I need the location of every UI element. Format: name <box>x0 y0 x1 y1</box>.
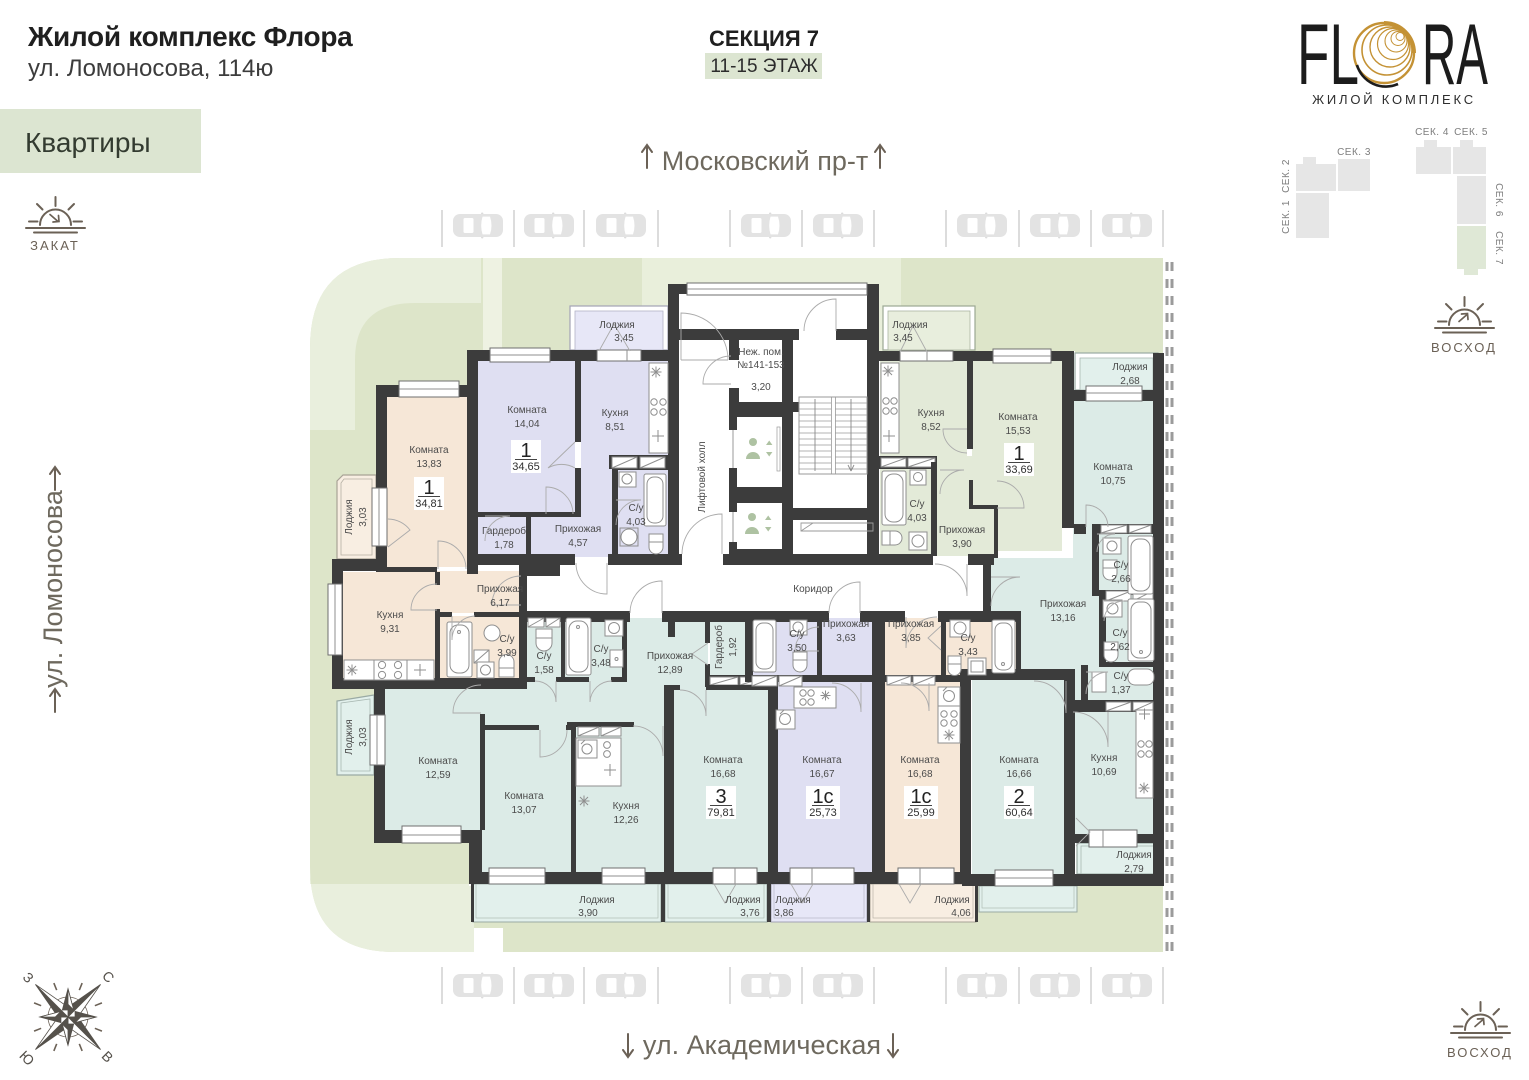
svg-text:11-15 ЭТАЖ: 11-15 ЭТАЖ <box>710 56 818 77</box>
svg-text:Неж. пом.: Неж. пом. <box>738 347 784 358</box>
svg-text:6,17: 6,17 <box>490 598 510 609</box>
svg-text:СЕК. 5: СЕК. 5 <box>1454 127 1488 138</box>
svg-text:Прихожая: Прихожая <box>647 651 693 662</box>
svg-text:2,66: 2,66 <box>1111 574 1131 585</box>
svg-text:33,69: 33,69 <box>1005 464 1033 476</box>
svg-text:3,03: 3,03 <box>358 727 369 747</box>
svg-text:Лоджия: Лоджия <box>892 320 927 331</box>
svg-text:Прихожая: Прихожая <box>888 619 934 630</box>
svg-text:Лоджия: Лоджия <box>579 895 614 906</box>
svg-text:Прихожая: Прихожая <box>555 524 601 535</box>
svg-text:Лифтовой холл: Лифтовой холл <box>696 441 708 512</box>
svg-text:С/у: С/у <box>910 499 925 510</box>
svg-text:Прихожая: Прихожая <box>477 584 523 595</box>
svg-text:79,81: 79,81 <box>707 807 735 819</box>
svg-text:С/у: С/у <box>1114 560 1129 571</box>
svg-text:9,31: 9,31 <box>380 624 400 635</box>
svg-text:Кухня: Кухня <box>613 801 640 812</box>
svg-text:3,86: 3,86 <box>774 908 794 919</box>
svg-text:Комната: Комната <box>703 755 743 766</box>
svg-text:4,03: 4,03 <box>907 513 927 524</box>
svg-text:12,89: 12,89 <box>657 665 682 676</box>
svg-text:Комната: Комната <box>900 755 940 766</box>
svg-text:3,85: 3,85 <box>901 633 921 644</box>
svg-text:С/у: С/у <box>961 633 976 644</box>
svg-text:Лоджия: Лоджия <box>1116 850 1151 861</box>
svg-text:Кухня: Кухня <box>377 610 404 621</box>
svg-text:4,03: 4,03 <box>626 517 646 528</box>
svg-text:ул. Академическая: ул. Академическая <box>643 1030 881 1060</box>
svg-text:1: 1 <box>520 440 531 462</box>
svg-text:Прихожая: Прихожая <box>939 525 985 536</box>
svg-text:№141-153: №141-153 <box>737 360 785 371</box>
svg-text:3,20: 3,20 <box>751 382 771 393</box>
svg-text:Лоджия: Лоджия <box>599 320 634 331</box>
svg-text:3,76: 3,76 <box>740 908 760 919</box>
svg-text:ЗАКАТ: ЗАКАТ <box>30 238 80 253</box>
svg-text:ЖИЛОЙ КОМПЛЕКС: ЖИЛОЙ КОМПЛЕКС <box>1312 92 1476 107</box>
svg-text:3,03: 3,03 <box>358 507 369 527</box>
svg-text:Комната: Комната <box>504 791 544 802</box>
svg-text:С/у: С/у <box>790 629 805 640</box>
svg-text:1,92: 1,92 <box>728 637 739 657</box>
svg-text:С/у: С/у <box>594 644 609 655</box>
svg-text:1с: 1с <box>910 786 931 808</box>
svg-text:СЕК. 3: СЕК. 3 <box>1337 147 1371 158</box>
svg-text:34,81: 34,81 <box>415 498 443 510</box>
svg-text:Прихожая: Прихожая <box>1040 599 1086 610</box>
svg-text:16,67: 16,67 <box>809 769 834 780</box>
svg-text:Комната: Комната <box>1093 462 1133 473</box>
svg-text:С/у: С/у <box>537 651 552 662</box>
svg-text:Кухня: Кухня <box>918 408 945 419</box>
svg-text:25,73: 25,73 <box>809 807 837 819</box>
svg-text:Комната: Комната <box>409 445 449 456</box>
svg-text:Лоджия: Лоджия <box>934 895 969 906</box>
svg-text:СЕК. 2: СЕК. 2 <box>1281 159 1292 193</box>
svg-text:С/у: С/у <box>629 503 644 514</box>
svg-text:Кухня: Кухня <box>1091 753 1118 764</box>
svg-text:12,26: 12,26 <box>613 815 638 826</box>
svg-text:Лоджия: Лоджия <box>725 895 760 906</box>
svg-text:25,99: 25,99 <box>907 807 935 819</box>
svg-text:3,99: 3,99 <box>497 648 517 659</box>
svg-text:Гардероб: Гардероб <box>482 525 526 537</box>
svg-text:Комната: Комната <box>418 756 458 767</box>
svg-text:34,65: 34,65 <box>512 461 540 473</box>
svg-text:1: 1 <box>1013 443 1024 465</box>
svg-text:13,07: 13,07 <box>511 805 536 816</box>
svg-text:Лоджия: Лоджия <box>775 895 810 906</box>
svg-text:1с: 1с <box>812 786 833 808</box>
svg-text:3,43: 3,43 <box>958 647 978 658</box>
svg-text:Комната: Комната <box>999 755 1039 766</box>
svg-text:Комната: Комната <box>998 412 1038 423</box>
svg-text:ВОСХОД: ВОСХОД <box>1447 1045 1513 1060</box>
svg-text:СЕК. 6: СЕК. 6 <box>1493 183 1504 217</box>
svg-text:FL: FL <box>1297 7 1359 103</box>
svg-text:Комната: Комната <box>507 405 547 416</box>
svg-text:16,68: 16,68 <box>710 769 735 780</box>
svg-text:2,62: 2,62 <box>1110 642 1130 653</box>
svg-text:8,52: 8,52 <box>921 422 941 433</box>
svg-text:1,58: 1,58 <box>534 665 554 676</box>
svg-text:СЕК. 1: СЕК. 1 <box>1281 200 1292 234</box>
svg-text:13,16: 13,16 <box>1050 613 1075 624</box>
svg-text:СЕКЦИЯ 7: СЕКЦИЯ 7 <box>709 26 819 51</box>
svg-text:2: 2 <box>1013 786 1024 808</box>
svg-text:10,75: 10,75 <box>1100 476 1125 487</box>
svg-text:13,83: 13,83 <box>416 459 441 470</box>
svg-text:4,57: 4,57 <box>568 538 588 549</box>
svg-text:ул. Ломоносова: ул. Ломоносова <box>38 489 68 688</box>
svg-text:С/у: С/у <box>1114 671 1129 682</box>
svg-text:1,78: 1,78 <box>494 540 514 551</box>
svg-text:10,69: 10,69 <box>1091 767 1116 778</box>
svg-text:СЕК. 4: СЕК. 4 <box>1415 127 1449 138</box>
svg-text:Лоджия: Лоджия <box>344 499 355 534</box>
svg-text:ВОСХОД: ВОСХОД <box>1431 340 1497 355</box>
svg-text:СЕК. 7: СЕК. 7 <box>1493 231 1504 265</box>
svg-text:16,66: 16,66 <box>1006 769 1031 780</box>
svg-text:С/у: С/у <box>500 634 515 645</box>
svg-text:3,90: 3,90 <box>952 539 972 550</box>
svg-text:3,45: 3,45 <box>893 333 913 344</box>
svg-text:3: 3 <box>715 786 726 808</box>
svg-text:2,79: 2,79 <box>1124 864 1144 875</box>
svg-text:60,64: 60,64 <box>1005 807 1033 819</box>
svg-text:3,45: 3,45 <box>614 333 634 344</box>
svg-text:14,04: 14,04 <box>514 419 539 430</box>
svg-text:12,59: 12,59 <box>425 770 450 781</box>
svg-text:Гардероб: Гардероб <box>713 625 725 669</box>
svg-text:2,68: 2,68 <box>1120 376 1140 387</box>
svg-text:Лоджия: Лоджия <box>1112 362 1147 373</box>
svg-text:Московский пр-т: Московский пр-т <box>662 146 868 176</box>
svg-text:Коридор: Коридор <box>793 584 833 595</box>
svg-text:3,63: 3,63 <box>836 633 856 644</box>
svg-text:1: 1 <box>423 477 434 499</box>
svg-text:Прихожая: Прихожая <box>823 619 869 630</box>
svg-text:1,37: 1,37 <box>1111 685 1131 696</box>
svg-text:Комната: Комната <box>802 755 842 766</box>
svg-text:8,51: 8,51 <box>605 422 625 433</box>
svg-text:3,90: 3,90 <box>578 908 598 919</box>
svg-text:С/у: С/у <box>1113 628 1128 639</box>
svg-text:ул. Ломоносова, 114ю: ул. Ломоносова, 114ю <box>28 55 273 82</box>
svg-text:15,53: 15,53 <box>1005 426 1030 437</box>
svg-text:3,48: 3,48 <box>591 658 611 669</box>
svg-text:Жилой комплекс Флора: Жилой комплекс Флора <box>27 21 353 52</box>
svg-text:16,68: 16,68 <box>907 769 932 780</box>
svg-text:4,06: 4,06 <box>951 908 971 919</box>
svg-text:3,50: 3,50 <box>787 643 807 654</box>
svg-text:Лоджия: Лоджия <box>344 719 355 754</box>
svg-text:Кухня: Кухня <box>602 408 629 419</box>
svg-text:RA: RA <box>1422 7 1488 103</box>
svg-text:Квартиры: Квартиры <box>25 127 151 158</box>
